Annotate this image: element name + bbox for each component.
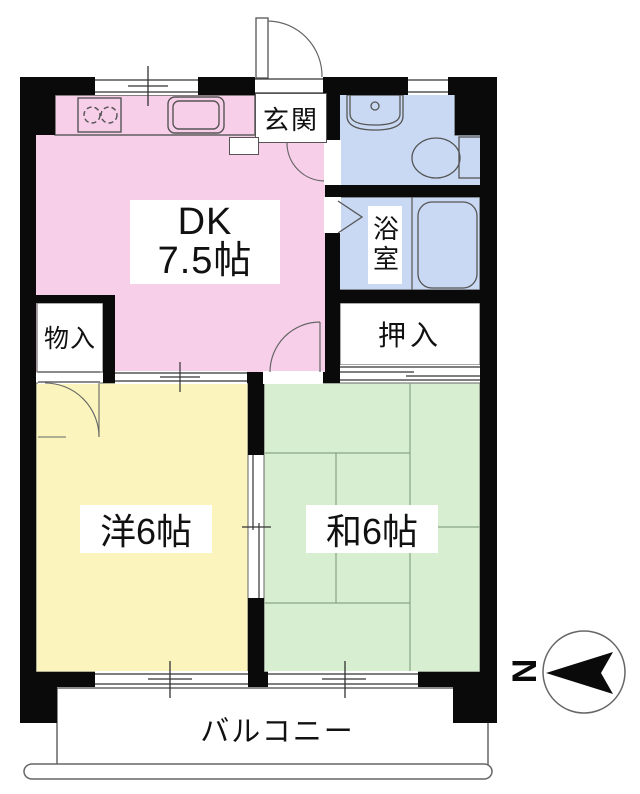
western-room-label: 洋6帖 — [80, 505, 212, 553]
wall-top-4 — [448, 77, 497, 95]
wall-room-divider-bottom — [248, 598, 264, 672]
wall-corner-bottomleft — [20, 672, 57, 723]
wall-bathroom-bottom — [337, 290, 497, 303]
wall-washroom-bottom — [340, 185, 497, 197]
dk-label-line1: DK — [178, 203, 233, 242]
wall-monoire-top — [20, 295, 115, 303]
western-room-label-text: 洋6帖 — [100, 503, 192, 555]
japanese-room-label-text: 和6帖 — [326, 503, 418, 555]
wall-left — [20, 95, 36, 672]
wall-top-1 — [20, 77, 95, 95]
oshiire-label-text: 押入 — [378, 314, 442, 354]
mono-ire-label: 物入 — [37, 305, 103, 369]
wall-center-3 — [325, 233, 340, 383]
wall-bottom-3 — [418, 672, 497, 687]
genkan-label-text: 玄関 — [263, 100, 319, 137]
wall-bottom-1 — [57, 672, 95, 687]
wall-mid-2 — [323, 372, 340, 383]
wall-center-1 — [325, 95, 340, 140]
wall-mid-1 — [247, 372, 264, 383]
genkan-label: 玄関 — [255, 93, 327, 143]
wall-center-2 — [325, 185, 340, 197]
wall-top-2 — [198, 77, 255, 95]
bathroom-label: 浴室 — [368, 206, 402, 284]
oshiire-label: 押入 — [340, 305, 480, 363]
wall-bottom-2 — [248, 672, 268, 687]
wall-right — [480, 95, 497, 673]
balcony-railing — [24, 764, 492, 779]
dk-label: DK 7.5帖 — [130, 200, 280, 284]
japanese-room-label: 和6帖 — [306, 505, 438, 553]
bathroom-label-text: 浴室 — [367, 215, 404, 275]
balcony-label-text: バルコニー — [200, 708, 354, 750]
dk-label-line2: 7.5帖 — [158, 242, 253, 281]
wall-top-3 — [323, 77, 408, 95]
mono-ire-label-text: 物入 — [44, 319, 96, 355]
wall-room-divider-top — [248, 383, 264, 455]
balcony-label: バルコニー — [165, 710, 390, 748]
wall-corner-bottomright — [453, 687, 497, 723]
wall-monoire-right — [103, 303, 115, 383]
genkan-step — [229, 137, 259, 155]
room-bathroom — [337, 197, 480, 290]
floor-plan: N 玄関 DK 7.5帖 物入 押入 浴室 洋6帖 和6帖 バルコニー — [0, 0, 640, 794]
